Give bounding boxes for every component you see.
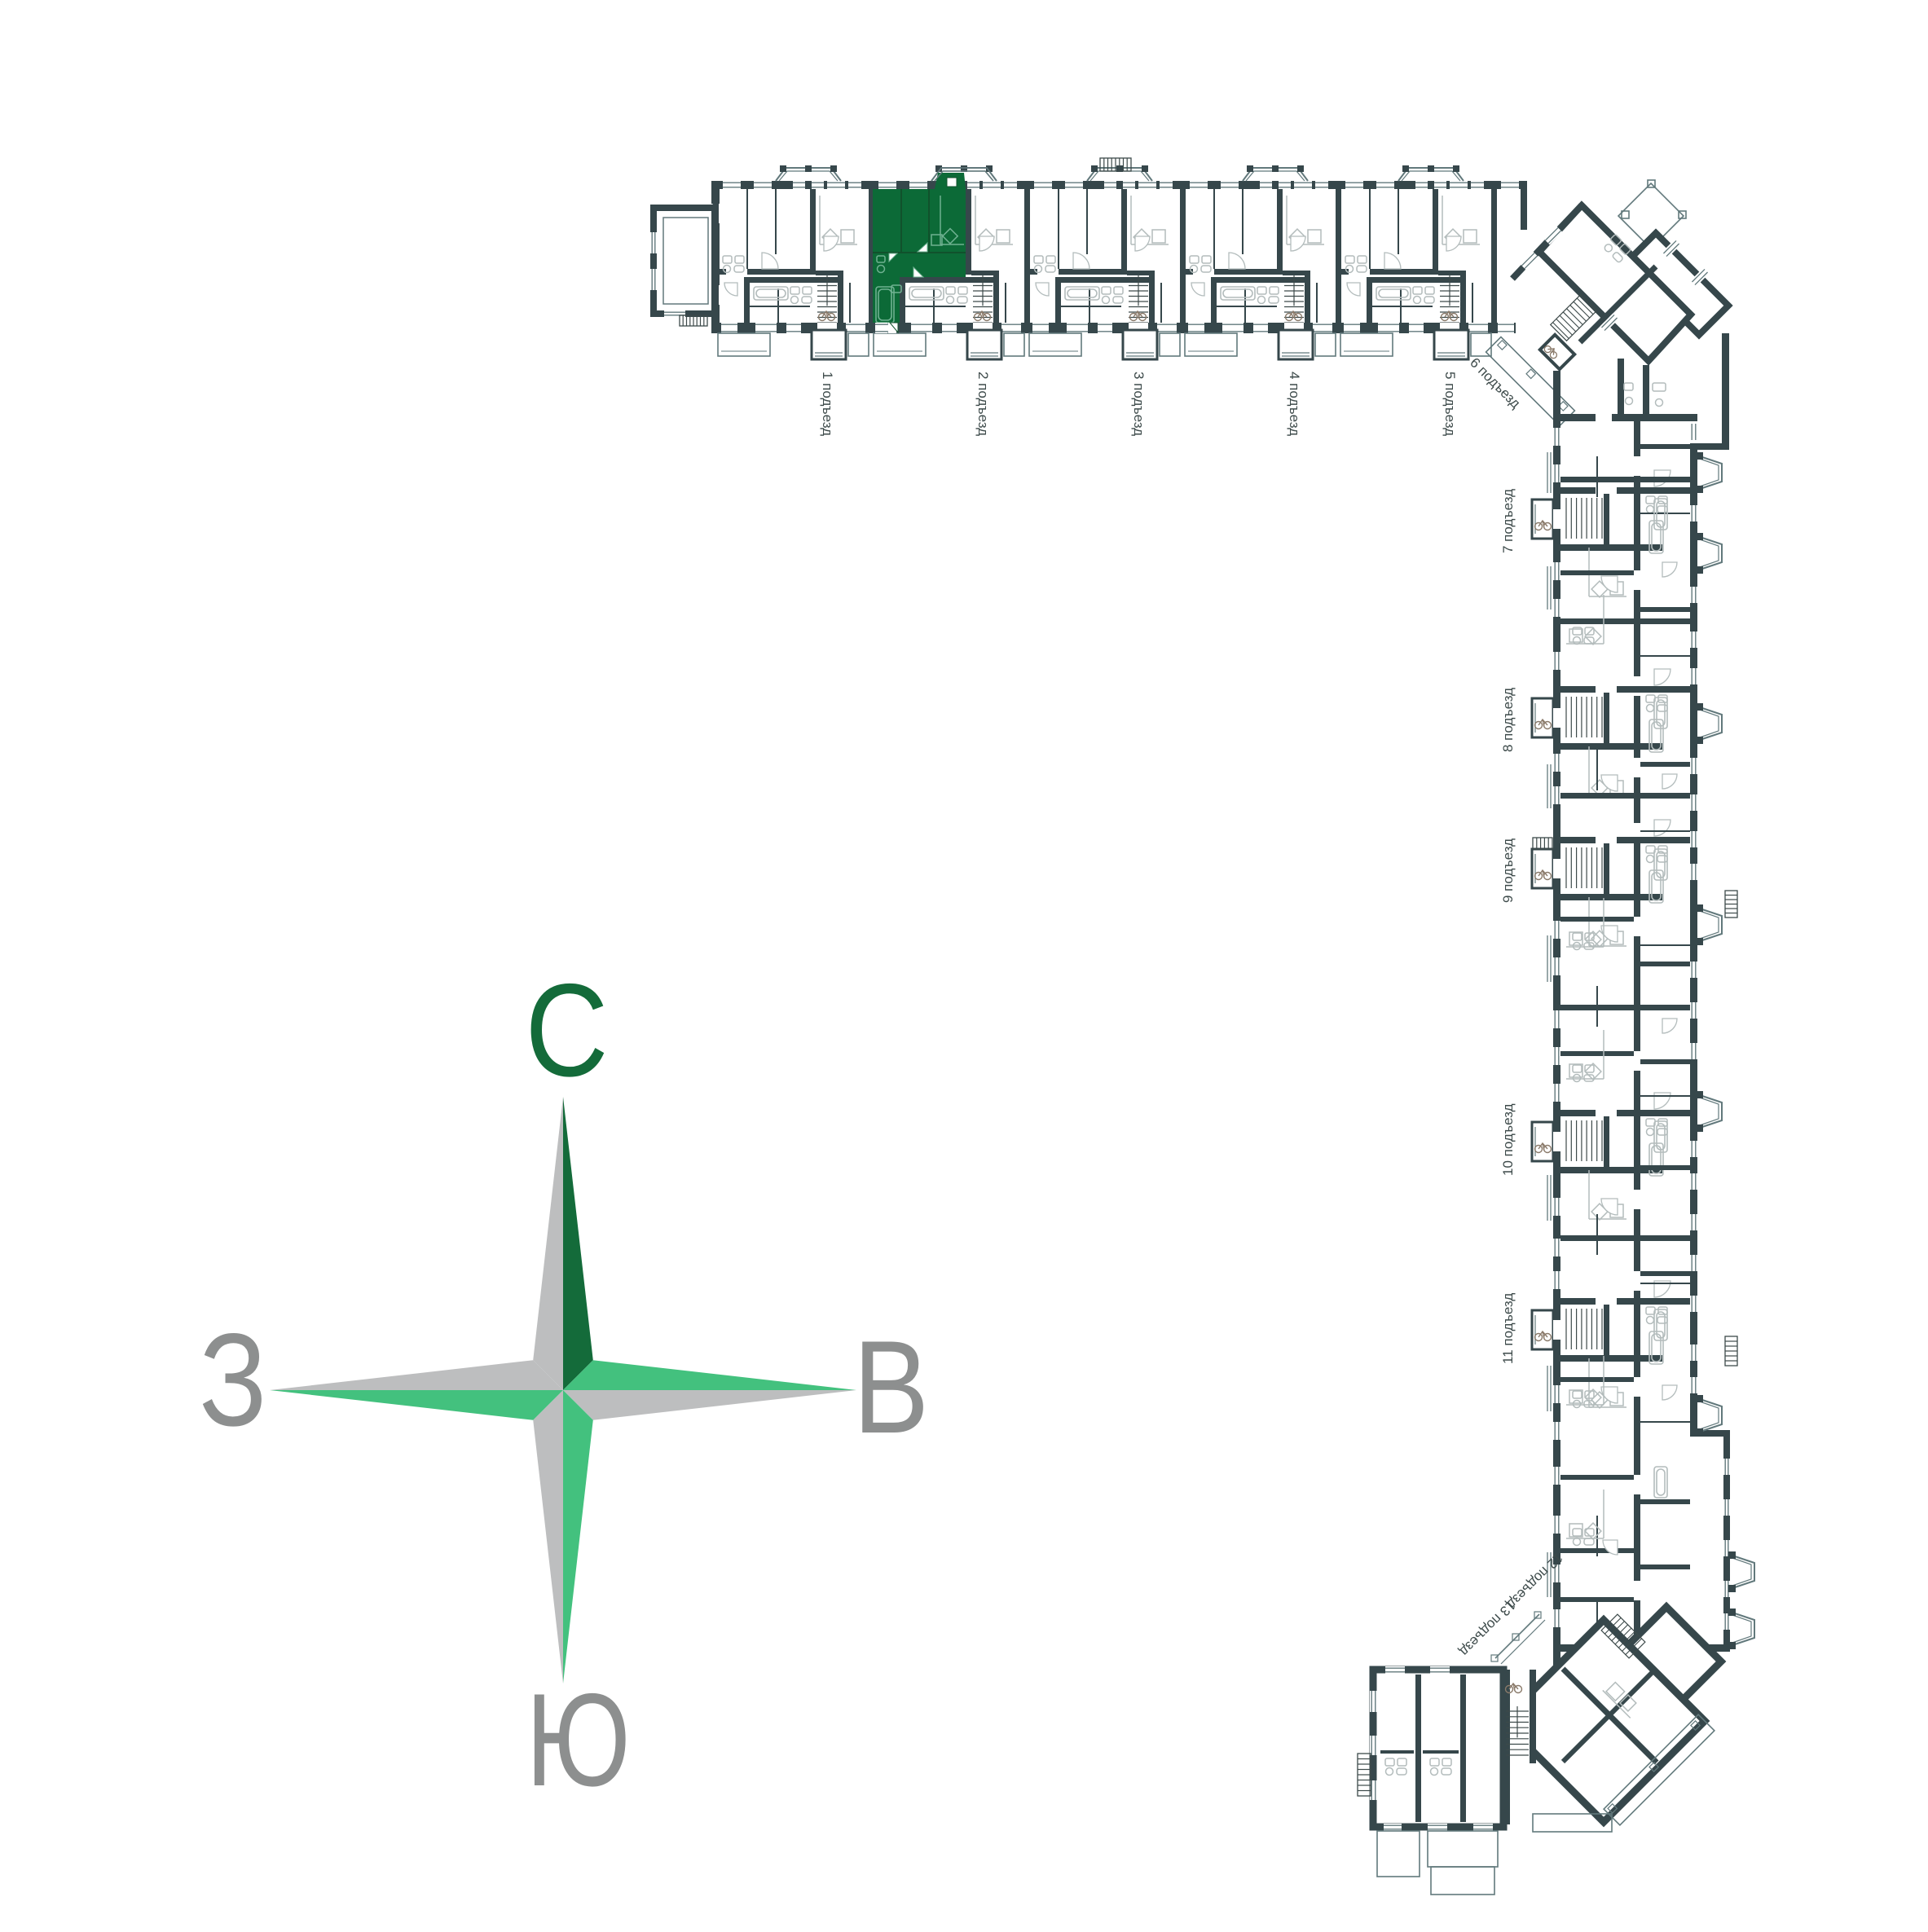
- svg-text:8 подъезд: 8 подъезд: [1500, 688, 1516, 752]
- svg-text:В: В: [853, 1314, 929, 1462]
- svg-text:10 подъезд: 10 подъезд: [1500, 1103, 1516, 1176]
- svg-text:4 подъезд: 4 подъезд: [1287, 372, 1302, 436]
- svg-text:3 подъезд: 3 подъезд: [1131, 372, 1147, 436]
- svg-text:6 подъезд: 6 подъезд: [1467, 354, 1523, 411]
- svg-text:13 подъезд: 13 подъезд: [1457, 1597, 1519, 1659]
- svg-text:9 подъезд: 9 подъезд: [1500, 838, 1516, 903]
- svg-text:Ю: Ю: [526, 1666, 631, 1813]
- svg-text:7 подъезд: 7 подъезд: [1500, 489, 1516, 553]
- svg-text:З: З: [199, 1306, 266, 1454]
- svg-text:С: С: [525, 957, 608, 1104]
- svg-text:11 подъезд: 11 подъезд: [1500, 1293, 1516, 1364]
- svg-text:5 подъезд: 5 подъезд: [1442, 372, 1458, 436]
- svg-text:2 подъезд: 2 подъезд: [975, 372, 991, 436]
- svg-text:1 подъезд: 1 подъезд: [820, 372, 835, 436]
